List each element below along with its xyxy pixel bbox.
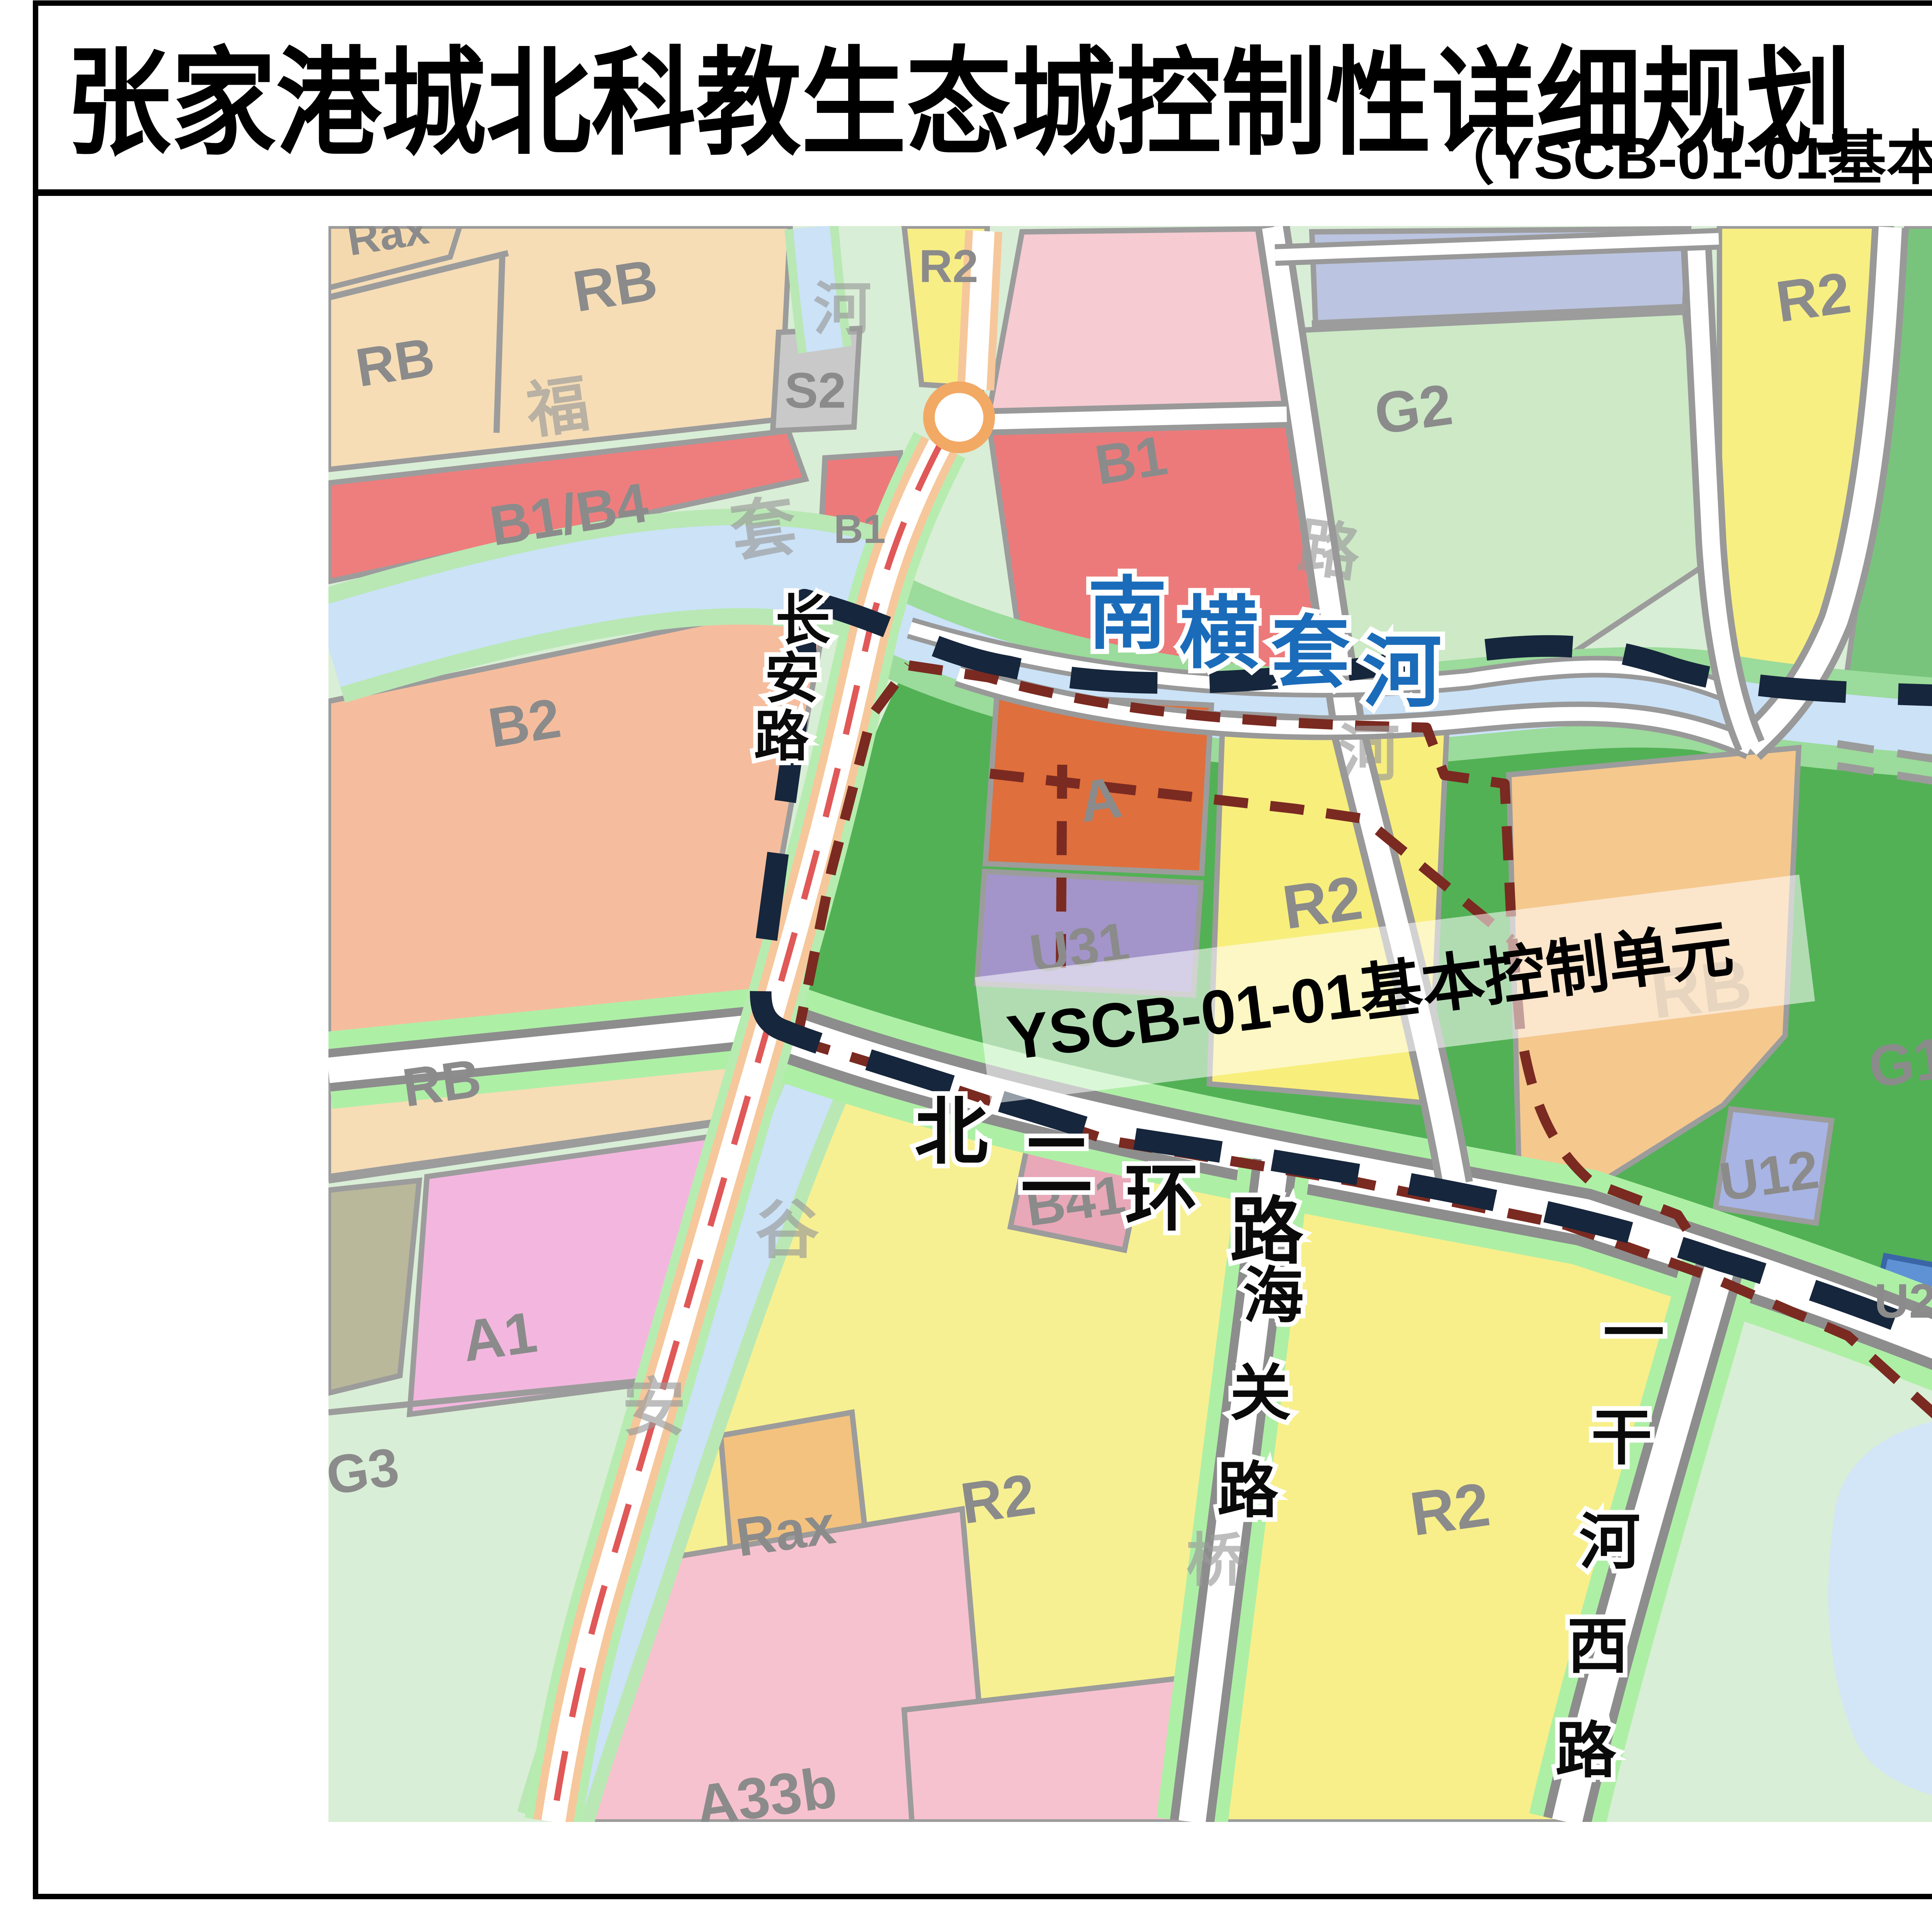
label-r2-topsliver: R2: [919, 240, 978, 292]
plan-map: 套 河 福 路 河 河 河 谷 安 桥 一 Rax RB RB B1/B4 B2…: [323, 204, 1932, 1838]
label-a1: A1: [458, 1299, 541, 1374]
label-r2-east: R2: [1406, 1469, 1494, 1549]
label-rb-small: RB: [352, 326, 438, 398]
label-r2-topright: R2: [1772, 260, 1854, 334]
road-surface: [983, 414, 1287, 422]
ghost-lu: 路: [1293, 512, 1364, 589]
ghost-gu: 谷: [755, 1194, 819, 1266]
ghost-he-1: 河: [813, 277, 871, 342]
page-subtitle: （YSCB-01-01基本控制单元） 拟调整范围图: [1436, 126, 1932, 191]
plan-sheet: 张家港城北科教生态城控制性详细规划 （YSCB-01-01基本控制单元） 拟调整…: [0, 0, 1932, 1917]
label-a: A: [1075, 764, 1126, 834]
ghost-he-2: 河: [1338, 719, 1400, 788]
ghost-qiao: 桥: [1186, 1528, 1244, 1593]
ghost-tao: 套: [726, 489, 801, 571]
ghost-an: 安: [622, 1372, 686, 1443]
label-r2-central: R2: [1279, 862, 1366, 942]
label-b2: B2: [484, 686, 565, 759]
label-g3: G3: [323, 1436, 403, 1506]
label-rb-big: RB: [569, 247, 662, 324]
roundabout: [929, 387, 989, 447]
title-rule: [36, 189, 1932, 196]
label-b1-red: B1: [1091, 424, 1171, 497]
label-u21: U21: [1874, 1274, 1932, 1328]
label-rb-lower: RB: [399, 1047, 485, 1118]
label-g2: G2: [1371, 371, 1456, 446]
title-block: 张家港城北科教生态城控制性详细规划 （YSCB-01-01基本控制单元） 拟调整…: [36, 38, 1932, 196]
ghost-fu: 福: [522, 369, 593, 446]
label-b1-small: B1: [834, 507, 886, 552]
parcel-b1-upper: [987, 229, 1285, 422]
label-r2-west: R2: [957, 1461, 1039, 1536]
label-s2: S2: [784, 362, 846, 418]
